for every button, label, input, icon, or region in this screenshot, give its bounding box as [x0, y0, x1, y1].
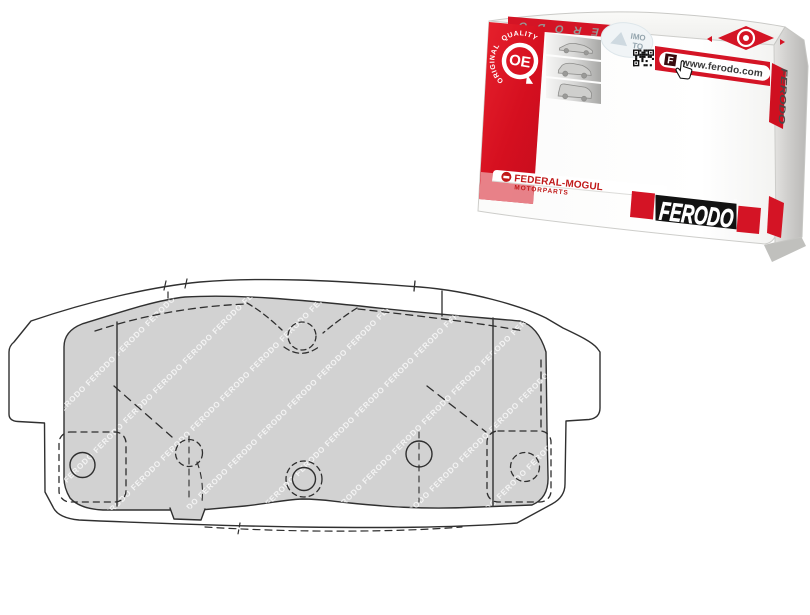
svg-text:OE: OE — [508, 51, 532, 71]
svg-text:®: ® — [733, 198, 738, 205]
